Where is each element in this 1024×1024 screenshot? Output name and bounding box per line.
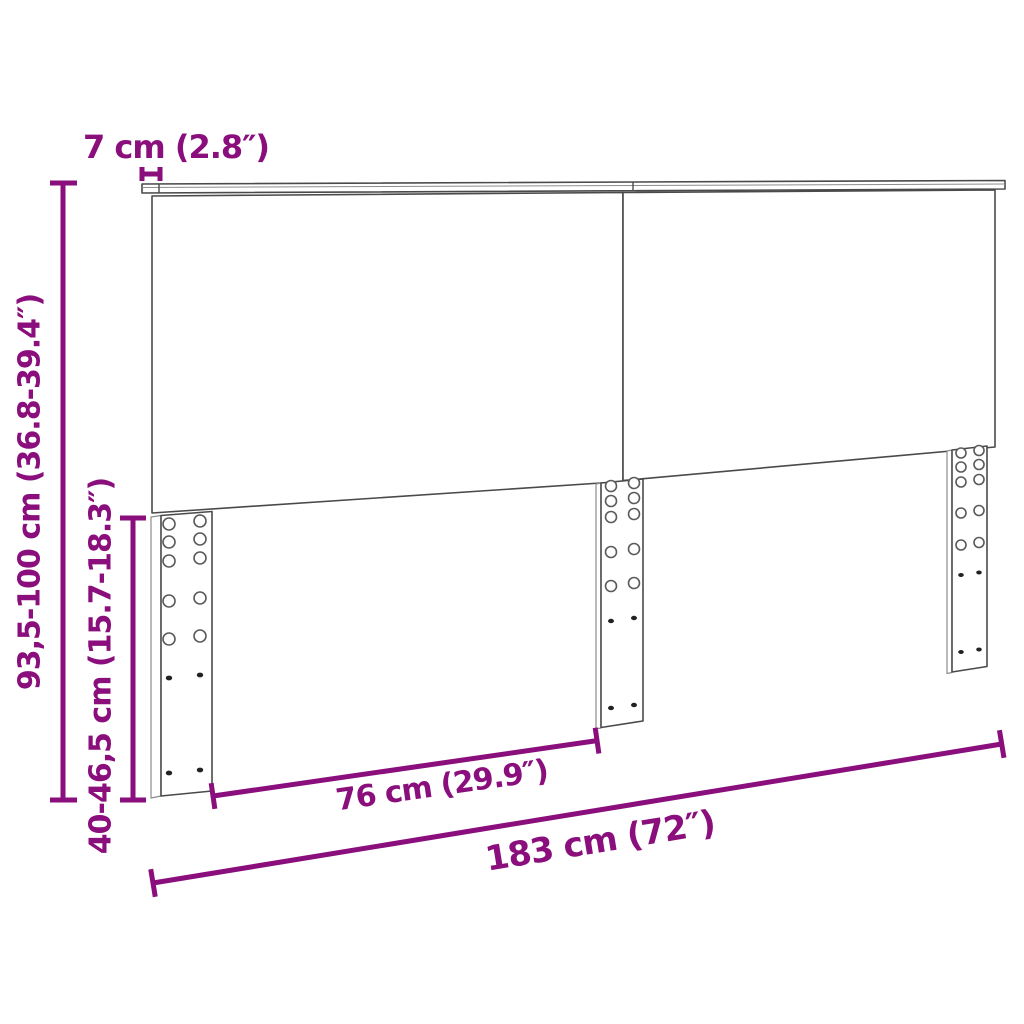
headboard-middle-leg: [596, 478, 643, 730]
total-width-label: 183 cm (72″): [483, 803, 718, 880]
top-depth-label: 7 cm (2.8″): [83, 128, 269, 166]
dimension-top-depth: 7 cm (2.8″): [83, 128, 269, 181]
total-height-label: 93,5-100 cm (36.8-39.4″): [13, 294, 48, 690]
dimension-tick: [151, 869, 156, 897]
headboard-dimension-diagram: 93,5-100 cm (36.8-39.4″) 40-46,5 cm (15.…: [0, 0, 1024, 1024]
headboard-left-leg: [151, 512, 212, 799]
dimension-total-height: 93,5-100 cm (36.8-39.4″): [13, 183, 78, 800]
headboard-drawing: [142, 181, 1005, 799]
dimension-tick: [999, 730, 1004, 758]
dimension-total-width: 183 cm (72″): [151, 730, 1010, 933]
diagram-page: 93,5-100 cm (36.8-39.4″) 40-46,5 cm (15.…: [0, 0, 1024, 1024]
dimension-tick: [211, 783, 215, 809]
dimension-leg-height: 40-46,5 cm (15.7-18.3″): [84, 478, 147, 854]
headboard-right-leg: [947, 446, 987, 674]
headboard-left-panel: [152, 193, 623, 514]
dimension-tick: [595, 728, 599, 754]
leg-height-label: 40-46,5 cm (15.7-18.3″): [84, 478, 119, 854]
headboard-right-panel: [623, 190, 995, 481]
